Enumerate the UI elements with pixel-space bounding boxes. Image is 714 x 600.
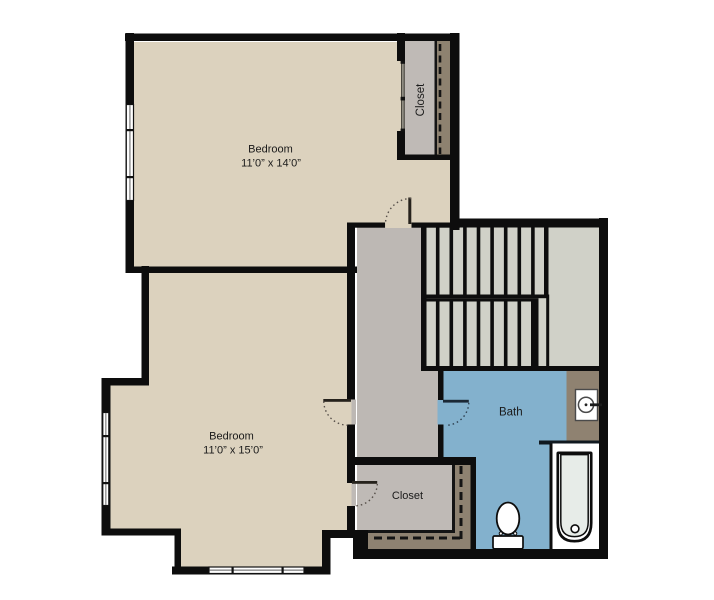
svg-text:11’0” x 15’0”: 11’0” x 15’0” [203,445,263,457]
svg-text:Bedroom: Bedroom [248,144,293,156]
svg-text:Bath: Bath [499,407,523,419]
svg-text:Closet: Closet [415,83,427,116]
svg-text:Bedroom: Bedroom [209,431,254,443]
svg-text:Closet: Closet [392,490,423,502]
svg-text:11’0” x 14’0”: 11’0” x 14’0” [241,158,301,170]
